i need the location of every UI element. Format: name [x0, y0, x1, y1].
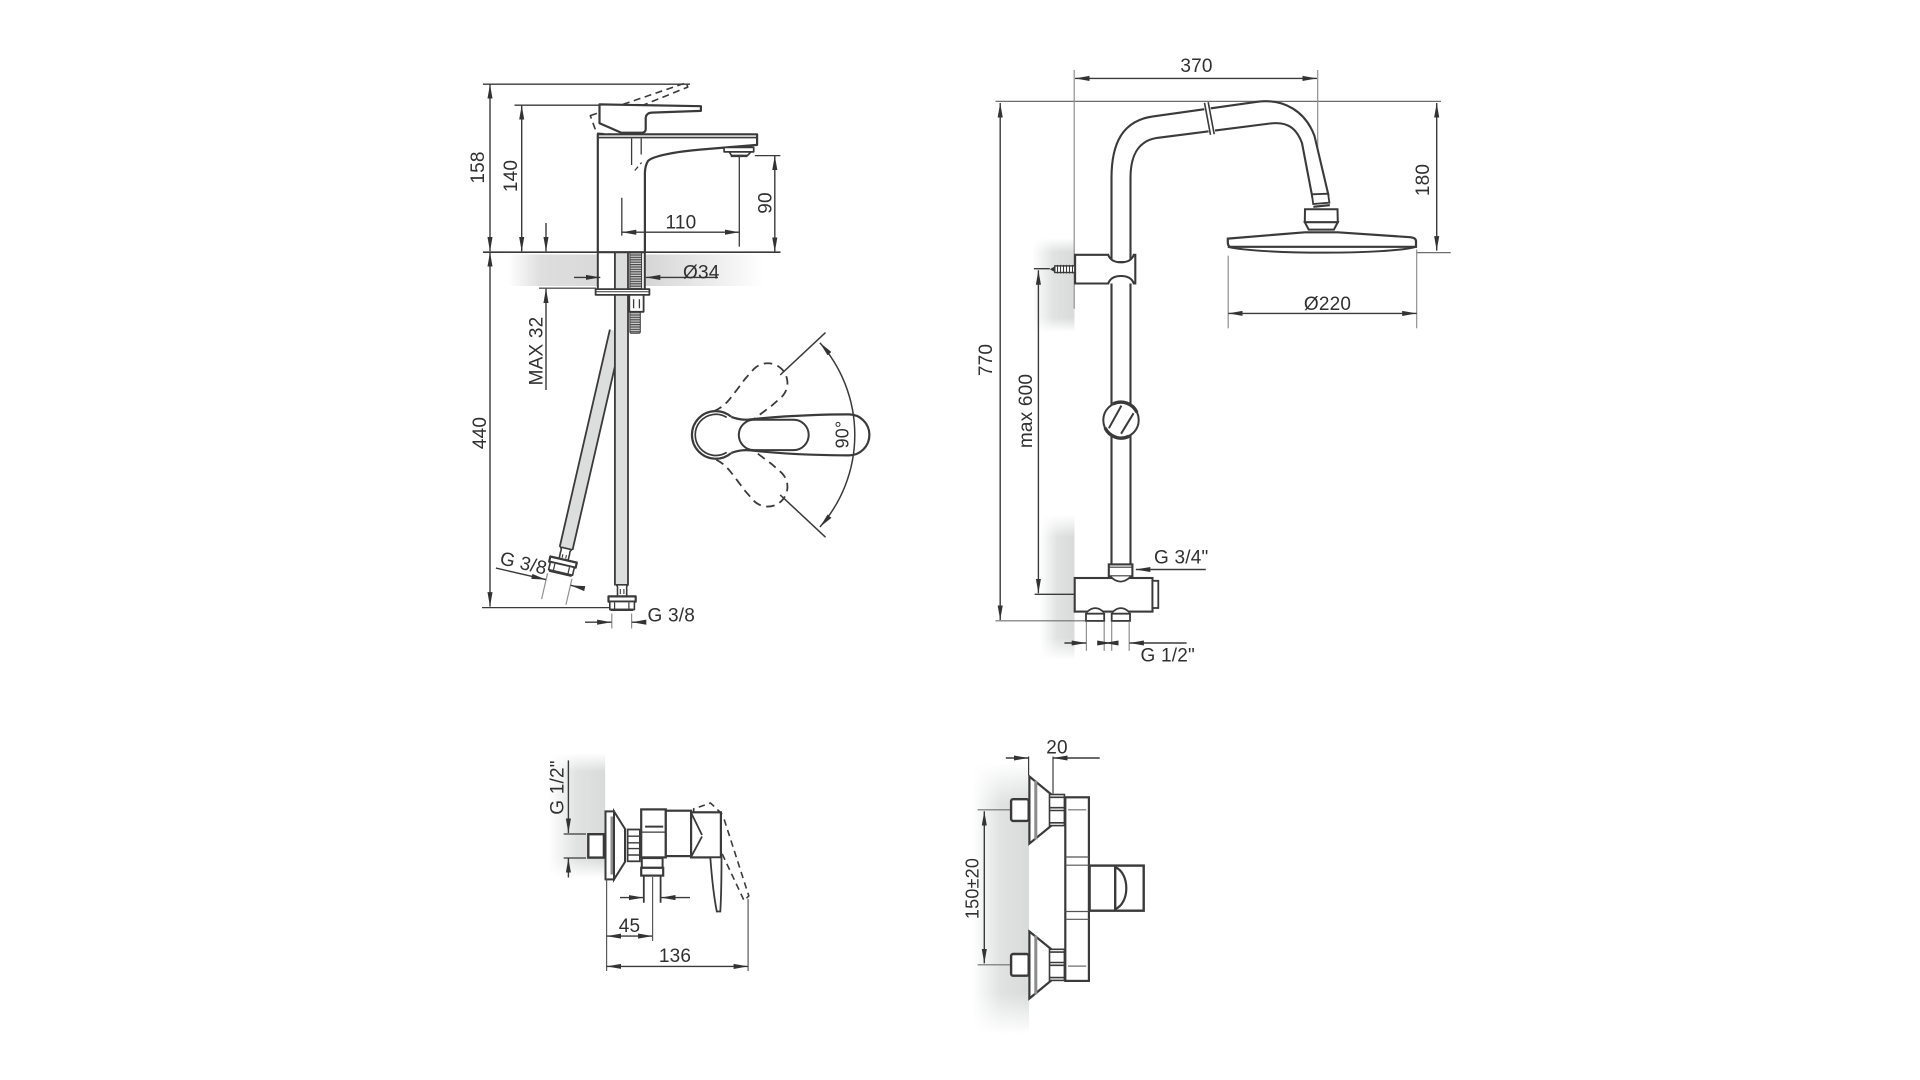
svg-text:G 3/4": G 3/4": [1154, 548, 1208, 569]
svg-text:90°: 90°: [832, 421, 852, 449]
svg-text:370: 370: [1180, 56, 1212, 77]
svg-text:G 3/8: G 3/8: [648, 606, 695, 627]
svg-text:G 1/2": G 1/2": [548, 760, 569, 814]
svg-text:20: 20: [1046, 738, 1068, 759]
svg-text:Ø220: Ø220: [1304, 294, 1351, 315]
svg-text:180: 180: [1413, 164, 1434, 196]
svg-text:150±20: 150±20: [962, 858, 982, 919]
svg-text:max 600: max 600: [1016, 374, 1037, 448]
svg-text:136: 136: [659, 946, 691, 967]
svg-text:MAX 32: MAX 32: [527, 317, 548, 386]
svg-text:158: 158: [468, 151, 489, 183]
svg-text:440: 440: [470, 417, 491, 449]
svg-text:90: 90: [756, 192, 777, 214]
svg-text:45: 45: [619, 916, 641, 937]
svg-text:770: 770: [976, 344, 997, 376]
svg-text:110: 110: [666, 213, 697, 234]
svg-text:G 1/2": G 1/2": [1141, 646, 1195, 667]
svg-text:140: 140: [501, 160, 522, 192]
svg-text:Ø34: Ø34: [683, 263, 720, 284]
